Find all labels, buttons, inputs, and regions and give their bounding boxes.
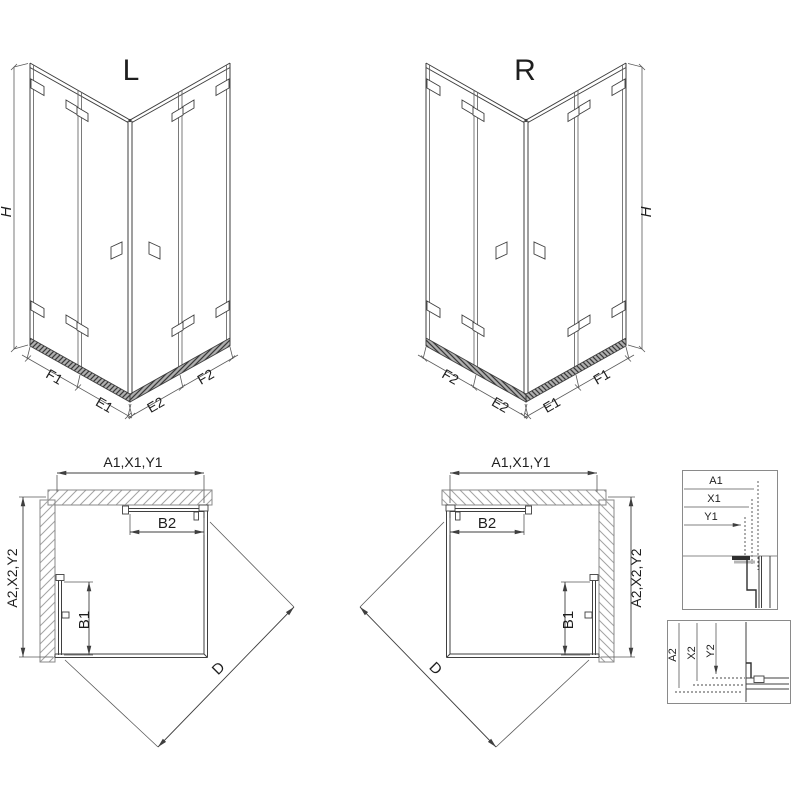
variant-title-right: R — [514, 54, 536, 87]
segment-label-e1: E1 — [93, 393, 116, 416]
diagonal-dim-label: D — [209, 659, 229, 679]
detail-box-frame — [668, 621, 791, 704]
detail-box-depth-adjustment: A2 X2 Y2 — [665, 618, 793, 706]
plan-geometry-instance-mirrored — [360, 473, 635, 747]
plan-width-dim-label: A1,X1,Y1 — [103, 454, 162, 470]
detail-label-y2: Y2 — [705, 644, 717, 657]
door-top-dim-label: B2 — [478, 515, 496, 532]
detail-box-frame — [683, 471, 778, 610]
iso-geometry-instance-mirrored — [418, 63, 645, 419]
iso-view-right: R H F2 E2 E1 F1 — [396, 50, 656, 460]
height-dim-label: H — [638, 206, 655, 217]
detail-depth-geometry-instance — [675, 622, 789, 702]
segment-label-e1: E1 — [540, 393, 563, 416]
segment-label-e2: E2 — [489, 393, 512, 416]
plan-depth-dim-label: A2,X2,Y2 — [4, 548, 20, 607]
technical-drawing-sheet: L H F1 E1 E2 F2 R H F2 E2 E1 F1 A1,X1,Y1… — [0, 0, 800, 800]
plan-width-dim-label: A1,X1,Y1 — [491, 454, 550, 470]
segment-label-e2: E2 — [144, 393, 167, 416]
door-side-dim-label: B1 — [76, 611, 93, 629]
detail-box-width-adjustment: A1 X1 Y1 — [680, 468, 780, 612]
door-side-dim-label: B1 — [560, 611, 577, 629]
detail-label-x2: X2 — [686, 646, 698, 659]
detail-label-a1: A1 — [709, 475, 722, 487]
plan-geometry-instance — [19, 473, 294, 747]
detail-label-y1: Y1 — [704, 511, 717, 523]
detail-label-a2: A2 — [667, 648, 679, 661]
detail-label-x1: X1 — [707, 493, 720, 505]
diagonal-dim-label: D — [426, 659, 446, 679]
height-dim-label: H — [0, 206, 15, 217]
plan-depth-dim-label: A2,X2,Y2 — [628, 548, 644, 607]
detail-width-geometry-instance — [683, 481, 777, 608]
iso-geometry-instance — [11, 63, 238, 419]
iso-view-left: L H F1 E1 E2 F2 — [0, 50, 260, 460]
plan-view-right: A1,X1,Y1 A2,X2,Y2 B2 B1 D — [360, 450, 690, 780]
door-top-dim-label: B2 — [158, 515, 176, 532]
variant-title-left: L — [123, 54, 140, 87]
plan-view-left: A1,X1,Y1 A2,X2,Y2 B2 B1 D — [0, 450, 320, 780]
